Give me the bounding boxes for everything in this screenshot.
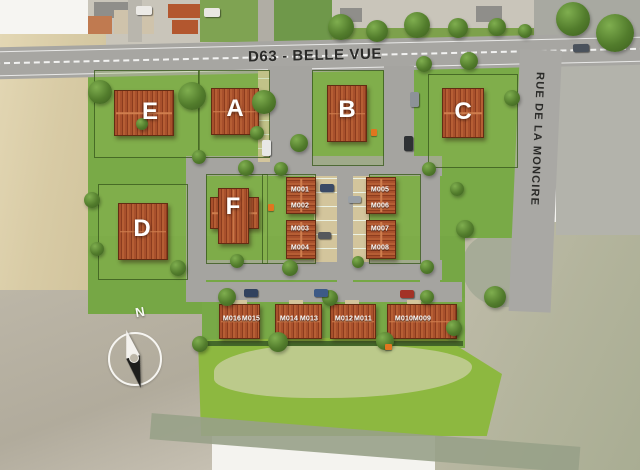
unit-label-m015: M015 <box>242 316 260 323</box>
tree <box>352 256 364 268</box>
tree <box>192 150 206 164</box>
tree <box>596 14 634 52</box>
unit-label-m003: M003 <box>291 226 309 233</box>
parked-car <box>400 290 414 298</box>
tree <box>230 254 244 268</box>
lot-label-e: E <box>142 98 158 126</box>
lot-label-a: A <box>226 95 243 123</box>
existing-garden <box>200 0 258 42</box>
compass-hub <box>129 353 139 363</box>
parked-car <box>410 92 419 107</box>
driveway <box>256 0 274 46</box>
parked-car <box>318 232 331 239</box>
tree <box>450 182 464 196</box>
unit-label-m004: M004 <box>291 245 309 252</box>
orange-equipment <box>371 129 377 136</box>
existing-house-roof <box>172 20 198 34</box>
tree <box>90 242 104 256</box>
tree <box>448 18 468 38</box>
orange-equipment <box>385 344 392 350</box>
lot-label-d: D <box>133 215 150 243</box>
unit-label-m011: M011 <box>354 316 372 323</box>
tree <box>366 20 388 42</box>
tree <box>404 12 430 38</box>
unit-label-m016: M016 <box>223 316 241 323</box>
tree <box>456 220 474 238</box>
parked-car <box>348 196 361 203</box>
tree <box>422 162 436 176</box>
unit-label-m008: M008 <box>371 245 389 252</box>
tree <box>518 24 532 38</box>
estate-central-lane <box>337 174 353 302</box>
roadside-east <box>556 50 640 235</box>
unit-label-m010: M010 <box>395 316 413 323</box>
bare-ground-southwest <box>0 290 212 470</box>
existing-house-roof <box>168 4 200 18</box>
tree <box>282 260 298 276</box>
unit-label-m013: M013 <box>300 316 318 323</box>
unit-label-m006: M006 <box>371 203 389 210</box>
tree <box>88 80 112 104</box>
hedge-row <box>205 341 463 346</box>
unit-label-m012: M012 <box>335 316 353 323</box>
tree <box>218 288 236 306</box>
tree <box>170 260 186 276</box>
unit-label-m001: M001 <box>291 187 309 194</box>
parked-van <box>136 6 152 15</box>
tree <box>274 162 288 176</box>
tree <box>238 160 254 176</box>
parked-car <box>320 184 334 192</box>
tree <box>420 260 434 274</box>
estate-ring-road-east <box>420 156 440 302</box>
tree <box>250 126 264 140</box>
existing-house-roof <box>88 16 112 34</box>
lot-label-b: B <box>338 96 355 124</box>
car-on-road <box>573 44 589 52</box>
tree <box>290 134 308 152</box>
tree <box>420 290 434 304</box>
tree <box>488 18 506 36</box>
tree <box>416 56 432 72</box>
parked-car <box>404 136 413 151</box>
tree <box>556 2 590 36</box>
tree <box>252 90 276 114</box>
map-edge-blank <box>0 0 88 34</box>
existing-garden <box>274 0 332 44</box>
parked-car <box>262 140 271 156</box>
parked-car <box>244 289 258 297</box>
site-plan-map: D63 - BELLE VUE RUE DE LA MONCIRE E A B … <box>0 0 640 470</box>
tree <box>484 286 506 308</box>
unit-label-m002: M002 <box>291 203 309 210</box>
tree <box>178 82 206 110</box>
unit-label-m014: M014 <box>280 316 298 323</box>
tree <box>446 320 462 336</box>
estate-ring-road-west <box>186 156 206 302</box>
road-label-d63: D63 - BELLE VUE <box>248 45 382 65</box>
tree <box>328 14 354 40</box>
unit-label-m007: M007 <box>371 226 389 233</box>
unit-label-m005: M005 <box>371 187 389 194</box>
lot-label-f: F <box>226 193 241 221</box>
tree <box>192 336 208 352</box>
tree <box>84 192 100 208</box>
tree <box>268 332 288 352</box>
tree <box>460 52 478 70</box>
parked-van <box>204 8 220 17</box>
orange-equipment <box>268 204 274 211</box>
unit-label-m009: M009 <box>413 316 431 323</box>
parked-car <box>314 289 328 297</box>
lot-label-c: C <box>454 98 471 126</box>
tree <box>504 90 520 106</box>
